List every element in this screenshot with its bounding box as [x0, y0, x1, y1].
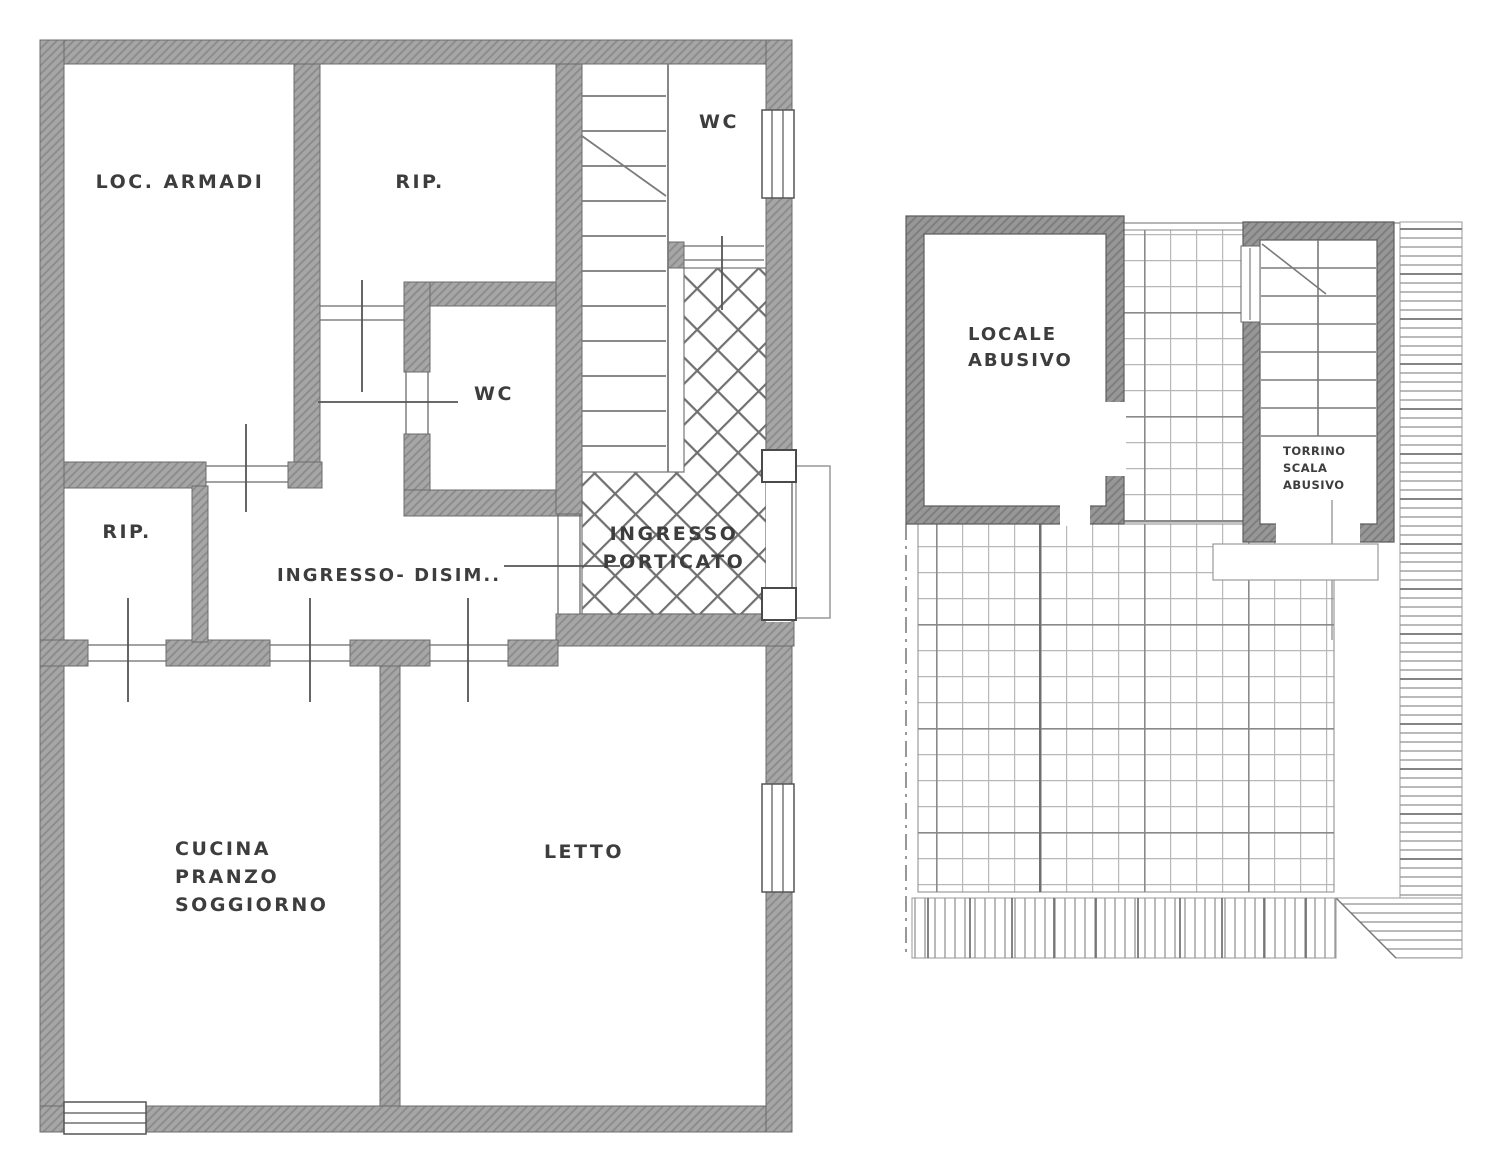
roof-band-right — [1336, 222, 1462, 958]
porch-pillar-top — [762, 450, 796, 482]
door-sill-rip-side — [88, 645, 166, 661]
door-sill-wc-top — [684, 246, 764, 260]
room-label-porticato-line2: PORTICATO — [603, 551, 746, 573]
eave-vstripes-bold — [912, 898, 1336, 958]
eave-band-bottom — [912, 898, 1336, 958]
window-cucina — [64, 1102, 146, 1134]
room-label-porticato-line1: INGRESSO — [610, 523, 739, 545]
room-label-cucina-line2: PRANZO — [175, 866, 279, 888]
room-label-cucina-line1: CUCINA — [175, 838, 271, 860]
locale-abusivo-block: LOCALE ABUSIVO — [906, 216, 1126, 526]
room-label-torrino-line3: ABUSIVO — [1283, 478, 1345, 492]
room-label-wc-middle: WC — [474, 383, 514, 405]
room-label-ingresso-disimpegno: INGRESSO- DISIM.. — [277, 565, 501, 586]
wall-hall-bottom-c — [350, 640, 430, 666]
room-label-locale-line1: LOCALE — [968, 324, 1057, 345]
wall-top — [40, 40, 790, 64]
locale-bottom-opening — [1060, 504, 1090, 526]
left-floor-plan: LOC. ARMADI RIP. WC WC RIP. INGRESSO- DI… — [40, 40, 830, 1134]
terrace-grid-upper-bold — [1124, 230, 1243, 522]
wall-cucina-letto-divider — [380, 666, 400, 1106]
floor-plan-sheet: LOC. ARMADI RIP. WC WC RIP. INGRESSO- DI… — [0, 0, 1500, 1172]
wall-bottom — [40, 1106, 790, 1132]
room-label-torrino-line1: TORRINO — [1283, 444, 1346, 458]
wall-wc-top-stub — [668, 242, 684, 268]
room-label-rip-side: RIP. — [102, 521, 151, 543]
stair-break-line — [1262, 244, 1326, 294]
wall-porch-bottom — [556, 614, 794, 646]
roof-band-hstripes-bold — [1400, 222, 1462, 898]
locale-door-opening — [1102, 402, 1126, 476]
staircase — [582, 64, 668, 472]
room-label-cucina-line3: SOGGIORNO — [175, 894, 328, 916]
door-sill-letto — [430, 645, 508, 661]
window-letto — [762, 784, 794, 892]
wall-armadi-right — [294, 64, 320, 464]
wall-wc-bottom — [404, 490, 582, 516]
exterior-step-outline — [796, 466, 830, 618]
door-sill-main-entrance — [558, 514, 580, 614]
window-wc-top — [762, 110, 794, 198]
torrino-door-opening — [1276, 522, 1360, 544]
floor-plans-drawing: LOC. ARMADI RIP. WC WC RIP. INGRESSO- DI… — [0, 0, 1500, 1172]
wall-armadi-bottom-a — [64, 462, 206, 488]
wall-hall-bottom-a — [40, 640, 88, 666]
porch-edge — [762, 450, 830, 622]
wall-wc-top — [404, 282, 582, 306]
wall-hall-bottom-b — [166, 640, 270, 666]
room-label-torrino-line2: SCALA — [1283, 461, 1327, 475]
wall-left — [40, 40, 64, 1132]
wall-rip-side-right — [192, 486, 208, 642]
door-sill-wc-middle — [406, 372, 428, 434]
room-label-loc-armadi: LOC. ARMADI — [96, 171, 265, 193]
room-label-letto: LETTO — [544, 841, 624, 863]
torrino-landing — [1213, 544, 1378, 580]
wall-wc-left-upper — [404, 282, 430, 372]
roof-corner — [1336, 898, 1462, 958]
wall-hall-bottom-d — [508, 640, 558, 666]
torrino-stairs — [1261, 240, 1376, 436]
porch-pillar-bottom — [762, 588, 796, 620]
door-sill-armadi — [206, 466, 288, 482]
room-label-rip-top: RIP. — [395, 171, 444, 193]
wall-stair-divider — [556, 64, 582, 514]
wall-armadi-bottom-b — [288, 462, 322, 488]
room-label-locale-line2: ABUSIVO — [968, 350, 1073, 371]
right-roof-plan: LOCALE ABUSIVO TORRINO SCALA A — [906, 216, 1462, 958]
room-label-wc-top: WC — [699, 111, 739, 133]
